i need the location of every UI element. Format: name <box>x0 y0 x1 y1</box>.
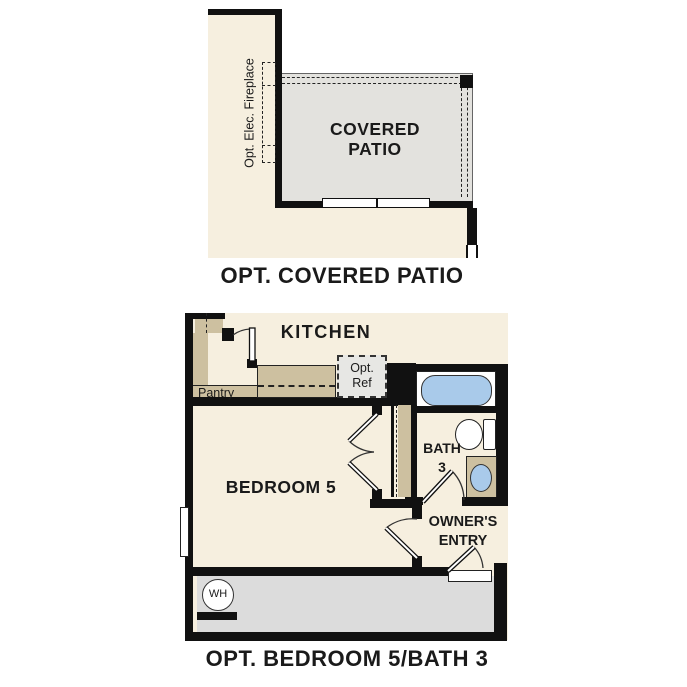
tub-bottom-wall <box>416 406 496 413</box>
patio-window-mullion <box>376 199 378 207</box>
pantry-door-stub <box>247 359 257 368</box>
entry-exterior-door-threshold <box>448 570 492 582</box>
kitchen-label: KITCHEN <box>256 322 396 343</box>
water-heater-wall-stub <box>197 612 237 620</box>
patio-left-wall <box>275 9 282 208</box>
pantry-corner-post <box>222 328 234 341</box>
closet-wall-fill <box>398 405 411 497</box>
patio-room-label: COVERED PATIO <box>295 119 455 159</box>
water-heater: WH <box>202 579 234 611</box>
owners-entry-label: OWNER'S ENTRY <box>413 513 513 551</box>
closet-wall-dashed-line <box>396 405 397 497</box>
right-exterior-wall-lower <box>494 563 507 640</box>
patio-caption: OPT. COVERED PATIO <box>192 263 492 289</box>
double-door-stub-top <box>372 403 382 415</box>
pantry-left-wall-fill <box>193 333 208 387</box>
fireplace-divider-top <box>262 85 276 86</box>
left-exterior-wall <box>185 313 193 640</box>
garage-floor <box>197 576 494 634</box>
bedroom-label: BEDROOM 5 <box>200 477 362 498</box>
floorplan-canvas: Opt. Elec. Fireplace COVERED PATIO OPT. … <box>0 0 687 687</box>
patio-post <box>460 75 473 88</box>
fireplace-divider-bottom <box>262 145 276 146</box>
fireplace-label: Opt. Elec. Fireplace <box>243 57 259 170</box>
pantry-top-dashed-line <box>206 313 207 333</box>
bedroom-bottom-wall <box>185 567 449 576</box>
vanity-sink <box>470 464 492 492</box>
bath-right-wall <box>496 364 508 503</box>
pantry-top-wall-fill <box>195 319 223 333</box>
patio-plan-floor-bottom <box>275 208 468 258</box>
fireplace-outline <box>262 62 276 163</box>
bedroom-plan-caption: OPT. BEDROOM 5/BATH 3 <box>197 646 497 672</box>
kitchen-cabinet <box>257 365 336 398</box>
bottom-exterior-wall <box>185 632 507 641</box>
water-heater-label: WH <box>203 580 233 609</box>
entry-top-wall <box>370 499 422 508</box>
bath-label: BATH 3 <box>416 439 468 477</box>
toilet-tank <box>483 419 496 450</box>
patio-window <box>322 198 430 208</box>
opt-ref-label: Opt. Ref <box>339 357 385 391</box>
patio-right-wall-lower <box>467 208 477 245</box>
kitchen-bath-wall-block <box>387 363 416 406</box>
opt-ref-box: Opt. Ref <box>337 355 387 398</box>
bedroom-window <box>180 507 189 557</box>
bathtub <box>421 375 492 406</box>
closet-wall-inner-line <box>391 405 394 497</box>
bath-bottom-wall-right <box>462 497 508 506</box>
patio-top-wall <box>208 9 282 15</box>
patio-side-door <box>466 245 478 258</box>
pantry-label: Pantry <box>198 386 244 400</box>
